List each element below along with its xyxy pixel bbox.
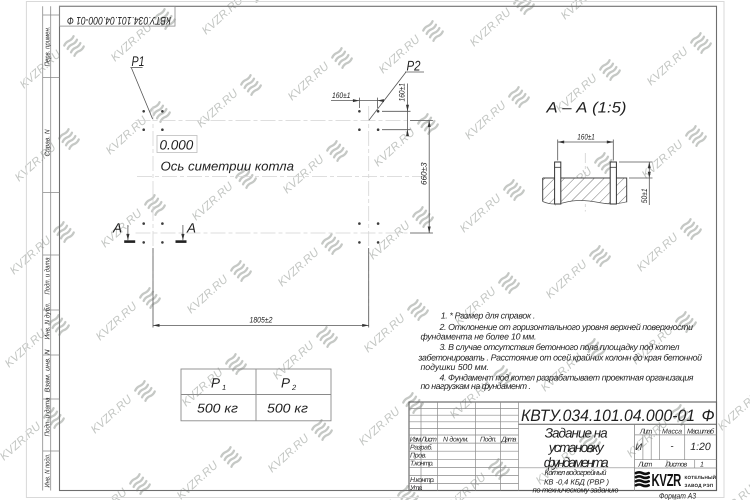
svg-text:660±3: 660±3 [420, 162, 429, 185]
svg-text:500 кг: 500 кг [197, 401, 239, 416]
svg-text:50±1: 50±1 [640, 188, 649, 203]
svg-text:Пров.: Пров. [410, 453, 427, 460]
svg-text:Утв.: Утв. [409, 485, 423, 492]
svg-text:Котел водогрейный: Котел водогрейный [545, 468, 608, 477]
svg-text:2. Отклонение от горизонтально: 2. Отклонение от горизонтального уровня … [439, 322, 694, 332]
svg-text:Изм.Лист: Изм.Лист [410, 436, 437, 443]
svg-text:по техническому заданию: по техническому заданию [533, 485, 619, 494]
svg-text:P: P [211, 376, 220, 391]
svg-text:подушки 500 мм.: подушки 500 мм. [421, 362, 490, 372]
svg-text:Масса: Масса [662, 429, 682, 436]
svg-text:Ф: Ф [702, 407, 715, 425]
svg-text:Задание на: Задание на [545, 426, 608, 441]
svg-text:по нагрузкам на фундамент .: по нагрузкам на фундамент . [421, 381, 532, 391]
svg-text:P1: P1 [132, 53, 145, 69]
svg-text:Взам. инв. N: Взам. инв. N [45, 349, 52, 393]
svg-text:Перв. примен.: Перв. примен. [45, 26, 52, 66]
svg-text:P2: P2 [407, 58, 421, 74]
svg-text:А – А (1:5): А – А (1:5) [545, 100, 626, 117]
svg-text:Подп. и дата: Подп. и дата [44, 397, 52, 436]
svg-text:500 кг: 500 кг [267, 401, 309, 416]
svg-text:Подп. и дата: Подп. и дата [44, 257, 52, 294]
svg-text:Масштаб: Масштаб [687, 428, 715, 436]
svg-text:A: A [186, 221, 196, 236]
svg-text:Инв. N дубл.: Инв. N дубл. [44, 302, 52, 339]
svg-text:P: P [281, 376, 290, 391]
svg-text:0.000: 0.000 [160, 138, 194, 153]
svg-text:1: 1 [700, 462, 704, 469]
svg-text:фундамента не более 10 мм.: фундамента не более 10 мм. [421, 332, 537, 342]
svg-text:И: И [635, 442, 642, 453]
svg-text:N докум.: N докум. [443, 435, 469, 443]
svg-text:Ось симетрии котла: Ось симетрии котла [161, 159, 295, 174]
svg-text:КВТУ.034.101.04.000-01: КВТУ.034.101.04.000-01 [521, 407, 695, 425]
svg-text:Лист: Лист [637, 462, 652, 469]
svg-text:установку: установку [548, 440, 605, 455]
svg-text:1:20: 1:20 [690, 441, 711, 453]
svg-text:1805±2: 1805±2 [250, 316, 273, 325]
svg-text:160±1: 160±1 [398, 83, 407, 102]
svg-text:Подп.: Подп. [480, 435, 497, 443]
svg-text:160±1: 160±1 [577, 133, 595, 142]
svg-text:забетонировать . Расстояние от: забетонировать . Расстояние от осей край… [417, 353, 702, 363]
svg-text:Формат А3: Формат А3 [659, 491, 696, 500]
svg-text:Справ. N: Справ. N [45, 129, 52, 157]
svg-text:1. * Размер для справок .: 1. * Размер для справок . [441, 311, 536, 321]
svg-text:2: 2 [291, 383, 297, 392]
svg-text:КОТЕЛЬНЫЙ: КОТЕЛЬНЫЙ [685, 474, 717, 480]
svg-text:Разраб.: Разраб. [410, 443, 433, 451]
svg-text:КВТУ.034.101.04.000-01 Ф: КВТУ.034.101.04.000-01 Ф [67, 14, 171, 26]
svg-text:160±1: 160±1 [332, 91, 351, 100]
svg-text:Т.контр.: Т.контр. [410, 461, 434, 468]
svg-text:Лит.: Лит. [639, 429, 653, 436]
svg-text:1: 1 [222, 383, 226, 392]
svg-text:Листов: Листов [664, 462, 687, 469]
svg-text:ЗАВОД РЭП: ЗАВОД РЭП [685, 483, 714, 488]
svg-text:KVZR: KVZR [652, 470, 682, 490]
svg-text:3. В случае отсутствия бетонно: 3. В случае отсутствия бетонного пола пл… [440, 342, 680, 352]
svg-text:-: - [670, 441, 673, 452]
svg-text:Инв. N подл.: Инв. N подл. [44, 453, 52, 487]
svg-text:A: A [112, 221, 122, 236]
svg-text:Дата: Дата [501, 436, 517, 443]
svg-text:Н.контр.: Н.контр. [410, 477, 435, 484]
